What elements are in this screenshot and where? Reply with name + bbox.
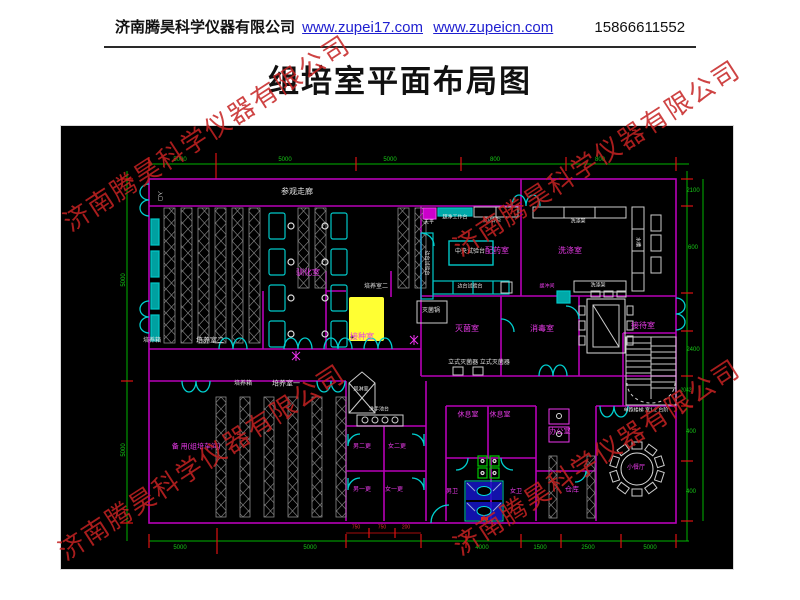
page-title: 组培室平面布局图 xyxy=(0,56,800,101)
link-zupei17[interactable]: www.zupei17.com xyxy=(302,19,423,36)
highlight-dot xyxy=(351,336,354,339)
floorplan-canvas xyxy=(60,125,734,570)
highlight-box xyxy=(349,297,384,341)
header-divider xyxy=(104,46,696,48)
phone-number: 15866611552 xyxy=(594,19,685,36)
floorplan-svg xyxy=(61,126,733,569)
page-header: 济南腾昊科学仪器有限公司 www.zupei17.com www.zupeicn… xyxy=(0,16,800,37)
link-zupeicn[interactable]: www.zupeicn.com xyxy=(433,19,553,36)
buffer-room-box xyxy=(557,291,570,303)
company-name: 济南腾昊科学仪器有限公司 xyxy=(115,19,295,36)
canvas-background xyxy=(61,126,733,569)
